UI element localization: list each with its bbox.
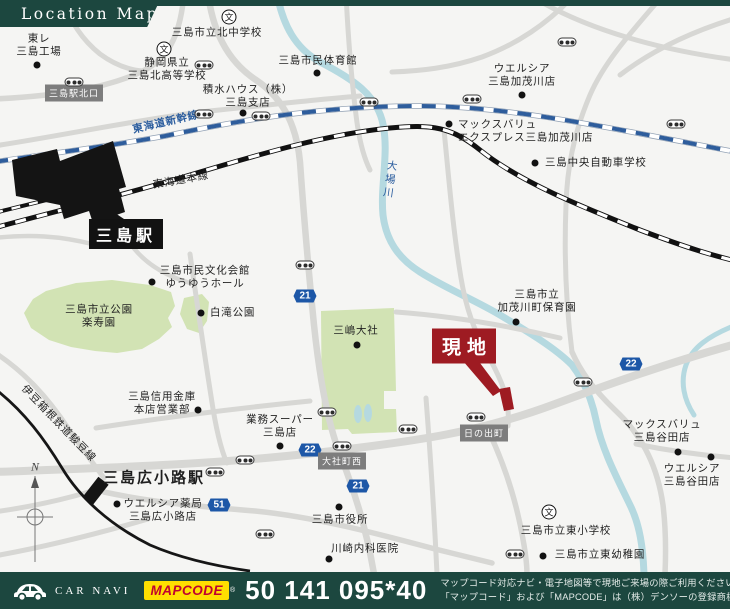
school-icon: 文: [222, 10, 237, 25]
kita-high-school: 静岡県立 三島北高等学校: [127, 57, 206, 84]
kamogawa-nursery: 三島市立 加茂川町保育園: [497, 289, 576, 316]
mapcode-notes: マップコード対応ナビ・電子地図等で現地ご来場の際ご利用ください。 「マップコード…: [440, 577, 730, 605]
welcia-pharmacy-hirokoji: ウエルシア薬局 三島広小路店: [123, 498, 202, 525]
traffic-signal-icon: [206, 468, 225, 477]
traffic-signal-icon: [333, 442, 352, 451]
poi-dot: [314, 70, 321, 77]
traffic-signal-icon: [506, 550, 525, 559]
poi-dot: [675, 449, 682, 456]
poi-dot: [195, 407, 202, 414]
maxvalu-yata: マックスバリュ 三島谷田店: [623, 419, 702, 446]
site-callout: 現地: [432, 329, 496, 364]
poi-dot: [336, 504, 343, 511]
route-shield-51: 51: [208, 499, 231, 512]
izuhakone-line-label: 伊豆箱根鉄道駿豆線: [18, 383, 98, 465]
traffic-signal-icon: [195, 61, 214, 70]
traffic-signal-icon: [399, 425, 418, 434]
registered-mark: ®: [230, 587, 235, 594]
traffic-signal-icon: [574, 378, 593, 387]
higashi-kindergarten: 三島市立東幼稚園: [555, 548, 645, 561]
poi-dot: [540, 553, 547, 560]
car-navi-label: CAR NAVI: [55, 585, 130, 597]
hinodecho-badge: 日の出町: [460, 425, 508, 442]
poi-dot: [198, 310, 205, 317]
traffic-signal-icon: [65, 78, 84, 87]
route-shield-22: 22: [620, 358, 643, 371]
tokaido-main-line-label: 東海道本線: [152, 169, 210, 192]
shinkin-bank: 三島信用金庫 本店営業部: [128, 391, 196, 418]
driving-school: 三島中央自動車学校: [545, 156, 647, 169]
page-title: Location Map: [0, 5, 159, 23]
welcia-kamogawa: ウエルシア 三島加茂川店: [488, 63, 556, 90]
poi-dot: [708, 454, 715, 461]
traffic-signal-icon: [467, 413, 486, 422]
footer-bar: CAR NAVI MAPCODE ® 50 141 095*40 マップコード対…: [0, 572, 730, 609]
toray-mishima-plant: 東レ 三島工場: [16, 33, 61, 60]
higashi-elementary: 三島市立東小学校: [521, 524, 611, 537]
taishacho-nishi-badge: 大社町西: [318, 453, 366, 470]
mapcode-note-1: マップコード対応ナビ・電子地図等で現地ご来場の際ご利用ください。: [440, 577, 730, 591]
poi-dot: [532, 160, 539, 167]
mapcode-logo: MAPCODE: [144, 581, 229, 600]
mishima-station-label: 三島駅: [89, 219, 163, 249]
poi-dot: [519, 92, 526, 99]
traffic-signal-icon: [195, 110, 214, 119]
traffic-signal-icon: [360, 98, 379, 107]
civic-gym: 三島市民体育館: [278, 54, 357, 67]
mapcode-number: 50 141 095*40: [245, 575, 427, 606]
traffic-signal-icon: [667, 120, 686, 129]
poi-dot: [326, 556, 333, 563]
maxvalu-express: マックスバリュ エクスプレス三島加茂川店: [458, 119, 593, 146]
compass-n: N: [31, 459, 39, 474]
gyomu-super: 業務スーパー 三島店: [246, 414, 314, 441]
map-canvas: 東レ 三島工場文三島市立北中学校文静岡県立 三島北高等学校三島市民体育館積水ハウ…: [0, 0, 730, 572]
kita-junior-high: 三島市立北中学校: [172, 26, 262, 39]
poi-dot: [277, 443, 284, 450]
map-overlays: 東レ 三島工場文三島市立北中学校文静岡県立 三島北高等学校三島市民体育館積水ハウ…: [0, 0, 730, 572]
traffic-signal-icon: [236, 456, 255, 465]
traffic-signal-icon: [256, 530, 275, 539]
shirataki-park: 白滝公園: [210, 306, 255, 319]
traffic-signal-icon: [463, 95, 482, 104]
map-title-banner: Location Map: [0, 0, 160, 27]
city-hall: 三島市役所: [312, 513, 369, 526]
school-icon: 文: [157, 42, 172, 57]
traffic-signal-icon: [252, 112, 271, 121]
poi-dot: [354, 342, 361, 349]
obagawa-river-label: 大場川: [380, 159, 399, 201]
traffic-signal-icon: [296, 261, 315, 270]
route-shield-21: 21: [347, 480, 370, 493]
school-icon: 文: [542, 505, 557, 520]
poi-dot: [446, 121, 453, 128]
welcia-yata: ウエルシア 三島谷田店: [664, 463, 721, 490]
poi-dot: [34, 62, 41, 69]
poi-dot: [114, 501, 121, 508]
car-icon: [13, 580, 47, 602]
hirokoji-station-label: 三島広小路駅: [103, 469, 205, 488]
sekisui-house: 積水ハウス（株） 三島支店: [203, 84, 293, 111]
traffic-signal-icon: [318, 408, 337, 417]
traffic-signal-icon: [558, 38, 577, 47]
kawasaki-clinic: 川崎内科医院: [331, 542, 399, 555]
poi-dot: [149, 279, 156, 286]
culture-hall: 三島市民文化会館 ゆうゆうホール: [160, 265, 250, 292]
mapcode-note-2: 「マップコード」および「MAPCODE」は（株）デンソーの登録商標です。: [440, 591, 730, 605]
shinkansen-label: 東海道新幹線: [131, 109, 200, 137]
route-shield-21: 21: [294, 290, 317, 303]
station-north-exit-badge: 三島駅北口: [45, 85, 103, 102]
rakujuen-park: 三島市立公園 楽寿園: [65, 304, 133, 331]
poi-dot: [513, 319, 520, 326]
location-map-frame: 東レ 三島工場文三島市立北中学校文静岡県立 三島北高等学校三島市民体育館積水ハウ…: [0, 0, 730, 609]
poi-dot: [240, 110, 247, 117]
mishima-taisha: 三嶋大社: [333, 324, 378, 337]
